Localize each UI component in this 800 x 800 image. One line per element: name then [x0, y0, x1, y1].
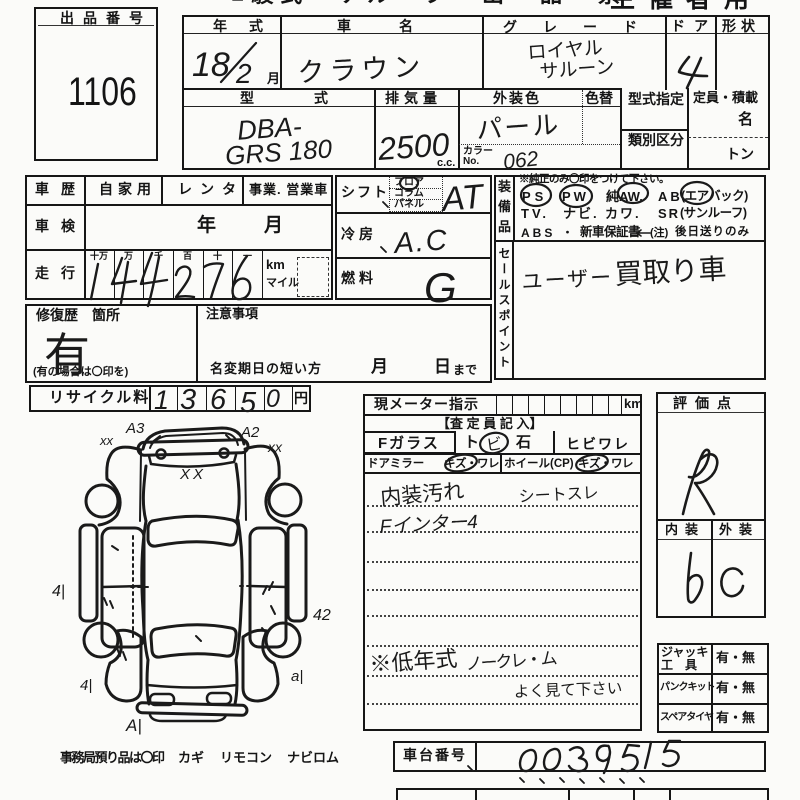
svg-text:4|: 4| — [52, 583, 65, 600]
svg-text:A2: A2 — [240, 424, 260, 441]
svg-text:5: 5 — [240, 387, 257, 419]
svg-text:1: 1 — [154, 385, 169, 415]
svg-text:a|: a| — [291, 668, 303, 685]
svg-text:AT: AT — [438, 177, 486, 219]
svg-text:よく見て下さい: よく見て下さい — [514, 679, 623, 701]
svg-text:062: 062 — [502, 147, 540, 174]
svg-text:0: 0 — [266, 385, 280, 413]
svg-text:パール: パール — [475, 109, 561, 145]
svg-text:xx: xx — [267, 439, 283, 455]
svg-text:G: G — [424, 264, 457, 311]
svg-text:2500: 2500 — [376, 126, 451, 167]
svg-text:A3: A3 — [125, 420, 145, 437]
svg-text:シートスレ: シートスレ — [518, 485, 599, 506]
svg-text:クラウン: クラウン — [297, 51, 426, 88]
svg-text:4|: 4| — [80, 677, 92, 694]
svg-text:42: 42 — [313, 607, 331, 624]
svg-text:3: 3 — [180, 384, 196, 416]
svg-text:A.C: A.C — [391, 224, 449, 260]
svg-text:A|: A| — [125, 716, 142, 735]
svg-text:※低年式: ※低年式 — [369, 646, 459, 677]
svg-text:XX: XX — [179, 466, 206, 483]
svg-text:Fインター4: Fインター4 — [379, 512, 478, 538]
svg-text:xx: xx — [99, 433, 114, 448]
svg-text:買取り車: 買取り車 — [614, 253, 727, 290]
svg-text:内装汚れ: 内装汚れ — [379, 480, 465, 510]
svg-text:ユーザー: ユーザー — [521, 266, 614, 294]
svg-text:サルーン: サルーン — [539, 57, 615, 83]
svg-text:GRS 180: GRS 180 — [224, 133, 333, 170]
svg-text:ノークレ・ム: ノークレ・ム — [465, 649, 557, 674]
svg-text:6: 6 — [210, 384, 227, 416]
svg-text:有: 有 — [44, 329, 90, 381]
